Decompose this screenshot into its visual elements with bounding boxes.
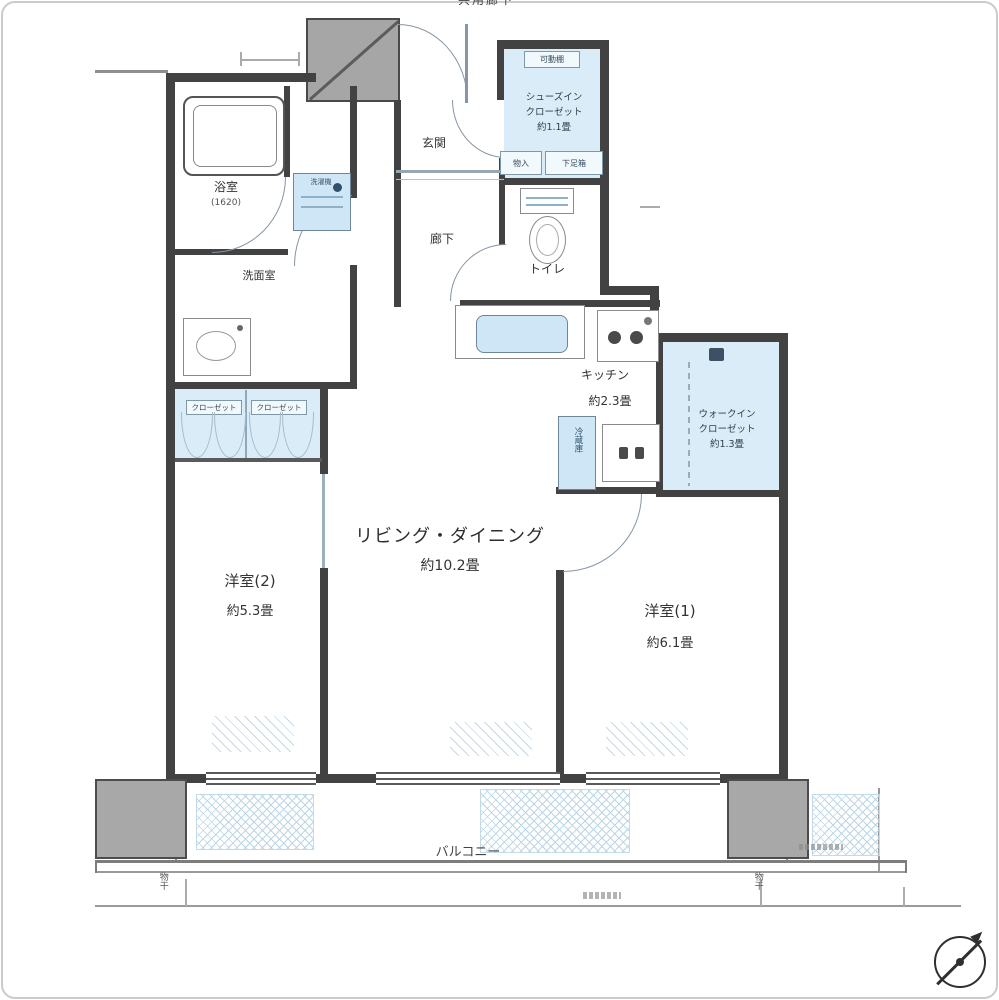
label-hallway: 廊下	[416, 232, 468, 246]
washer-line	[301, 206, 343, 208]
label-bedroom1-size: 約6.1畳	[620, 636, 720, 652]
toilet-bowl	[529, 216, 566, 264]
wall	[779, 338, 788, 783]
window	[586, 772, 720, 785]
tiny-note-marks	[583, 892, 621, 899]
shoes-closet-label: シューズイン クローゼット 約1.1畳	[506, 90, 602, 136]
wall	[320, 568, 328, 783]
burner	[608, 331, 621, 344]
cabinet-mark	[619, 447, 628, 459]
wall	[166, 73, 316, 82]
window	[206, 772, 316, 785]
wall	[499, 178, 607, 185]
kitchen-counter	[455, 305, 585, 359]
refrigerator-space: 冷蔵庫	[558, 416, 596, 490]
compass-icon	[926, 928, 996, 998]
wall	[654, 333, 788, 342]
balcony-fence-inner	[95, 871, 907, 873]
walkin-closet-label: ウォークイン クローゼット 約1.3畳	[677, 407, 777, 453]
entrance-step-line2	[396, 179, 504, 180]
burner	[644, 317, 652, 325]
fence-cap	[905, 860, 907, 873]
label-laundry-pole-right: 物干	[752, 872, 763, 890]
storage-tag: 物入	[500, 151, 542, 175]
shoe-box-tag: 下足箱	[545, 151, 603, 175]
bathtub-inner	[193, 105, 277, 167]
vanity-sink	[196, 331, 236, 361]
dimension-tick	[298, 52, 300, 66]
vanity-counter	[183, 318, 251, 376]
label-bedroom2: 洋室(2)	[200, 572, 300, 590]
label-bathroom-size: (1620)	[198, 198, 254, 209]
label-entrance: 玄関	[408, 136, 460, 150]
ceiling-hatch	[606, 722, 688, 756]
wall	[166, 382, 357, 389]
balcony-hatch	[480, 789, 630, 853]
toilet-seat	[536, 224, 559, 256]
label-laundry-pole-left: 物干	[157, 872, 168, 890]
kitchen-sink	[476, 315, 568, 353]
entrance-door-leaf	[465, 24, 468, 103]
toilet-tank	[520, 188, 574, 214]
label-balcony: バルコニー	[408, 845, 528, 861]
balcony-column	[95, 779, 187, 859]
dimension-line	[240, 59, 300, 61]
washer-faucet-dot	[333, 183, 342, 192]
dimension-tick	[240, 52, 242, 66]
compass-center-dot	[956, 958, 964, 966]
label-bedroom2-size: 約5.3畳	[200, 604, 300, 620]
movable-shelf-tag: 可動棚	[524, 51, 580, 68]
ground-tick	[903, 887, 905, 906]
bathtub	[183, 96, 285, 176]
wall	[656, 490, 788, 497]
burner	[630, 331, 643, 344]
label-common-corridor: 共用廊下	[438, 0, 534, 7]
dimension-tick	[640, 206, 660, 208]
wall	[350, 265, 357, 389]
ground-tick	[185, 879, 187, 906]
stove	[597, 310, 659, 362]
corridor-line	[95, 70, 168, 73]
floorplan-canvas: 共用廊下 浴室 (1620)	[0, 0, 999, 1000]
tank-line	[526, 197, 568, 199]
label-living-dining: リビング・ダイニング	[340, 526, 560, 548]
fence-cap	[95, 860, 97, 873]
wall	[166, 73, 175, 783]
washing-machine: 洗濯機	[293, 173, 351, 231]
label-refrigerator: 冷蔵庫	[572, 427, 584, 453]
balcony-fence	[95, 860, 907, 863]
wic-shelf-mark	[709, 348, 724, 361]
balcony-hatch	[196, 794, 314, 850]
label-living-dining-size: 約10.2畳	[395, 558, 505, 575]
label-washroom: 洗面室	[226, 269, 292, 282]
balcony-column	[727, 779, 809, 859]
cabinet-mark	[635, 447, 644, 459]
entrance-step-line	[396, 170, 504, 173]
tank-line	[526, 204, 568, 206]
wall	[556, 570, 564, 783]
sliding-door-line	[322, 474, 325, 568]
washer-line	[301, 196, 343, 198]
window	[376, 772, 560, 785]
closet-front-line	[175, 458, 322, 462]
label-kitchen: キッチン	[565, 368, 645, 382]
wall	[497, 40, 609, 49]
vanity-faucet-dot	[237, 325, 243, 331]
tiny-note-marks	[799, 844, 843, 850]
label-toilet: トイレ	[512, 262, 582, 276]
label-bathroom: 浴室	[198, 180, 254, 194]
wall	[350, 86, 357, 198]
label-bedroom1: 洋室(1)	[620, 602, 720, 620]
ground-line	[95, 905, 961, 907]
wall	[497, 40, 504, 100]
ceiling-hatch	[450, 722, 532, 756]
label-kitchen-size: 約2.3畳	[570, 394, 650, 408]
wall	[499, 185, 505, 245]
ceiling-hatch	[212, 716, 294, 752]
cabinet-fixture	[602, 424, 660, 482]
wall	[394, 100, 401, 307]
